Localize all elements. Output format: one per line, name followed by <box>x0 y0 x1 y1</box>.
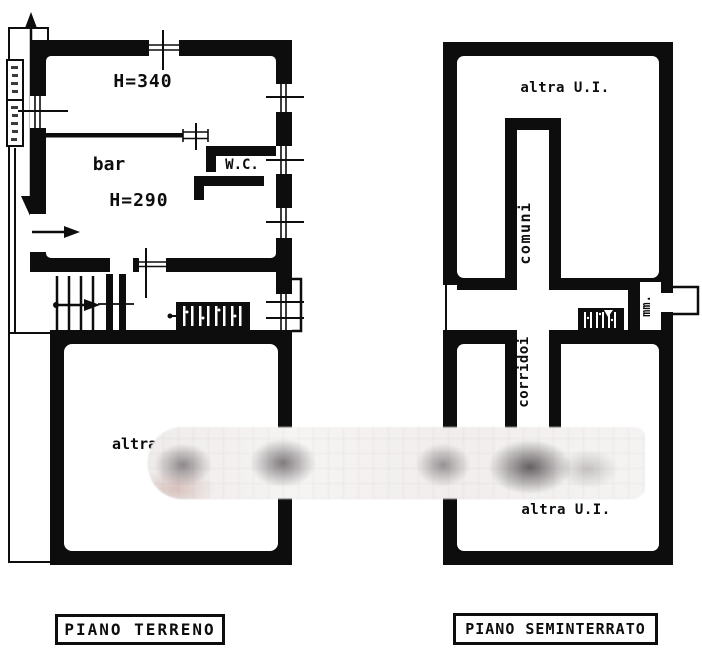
corridoi-label: corridoi <box>516 336 532 407</box>
bar-height-label: H=290 <box>109 190 168 211</box>
corridor-wall <box>549 330 561 437</box>
room-height-label: H=340 <box>113 71 172 92</box>
floor-plan-sheet: H=340 bar H=290 W.C. altra <box>0 0 702 655</box>
upper-room-label: altra U.I. <box>520 80 609 96</box>
hatched-stair <box>168 302 251 330</box>
basement-title: PIANO SEMINTERRATO <box>453 613 658 645</box>
wc-label: W.C. <box>225 157 259 173</box>
door-jamb <box>106 274 113 332</box>
comuni-label: comuni <box>516 201 534 264</box>
side-strip <box>9 333 52 562</box>
ground-floor-title: PIANO TERRENO <box>55 614 225 645</box>
stair-strip <box>53 272 304 332</box>
lower-room-label: altra U.I. <box>521 502 610 518</box>
redaction-blur <box>148 427 645 499</box>
partition-wall <box>46 133 183 138</box>
side-bump-outline <box>670 287 698 314</box>
arrow-up-icon <box>25 12 37 28</box>
small-room-label: mm. <box>639 295 653 317</box>
floor-plan-drawing: H=340 bar H=290 W.C. altra <box>0 0 702 655</box>
hatched-stair <box>578 308 624 330</box>
bar-label: bar <box>93 154 126 175</box>
door-jamb <box>119 274 126 332</box>
